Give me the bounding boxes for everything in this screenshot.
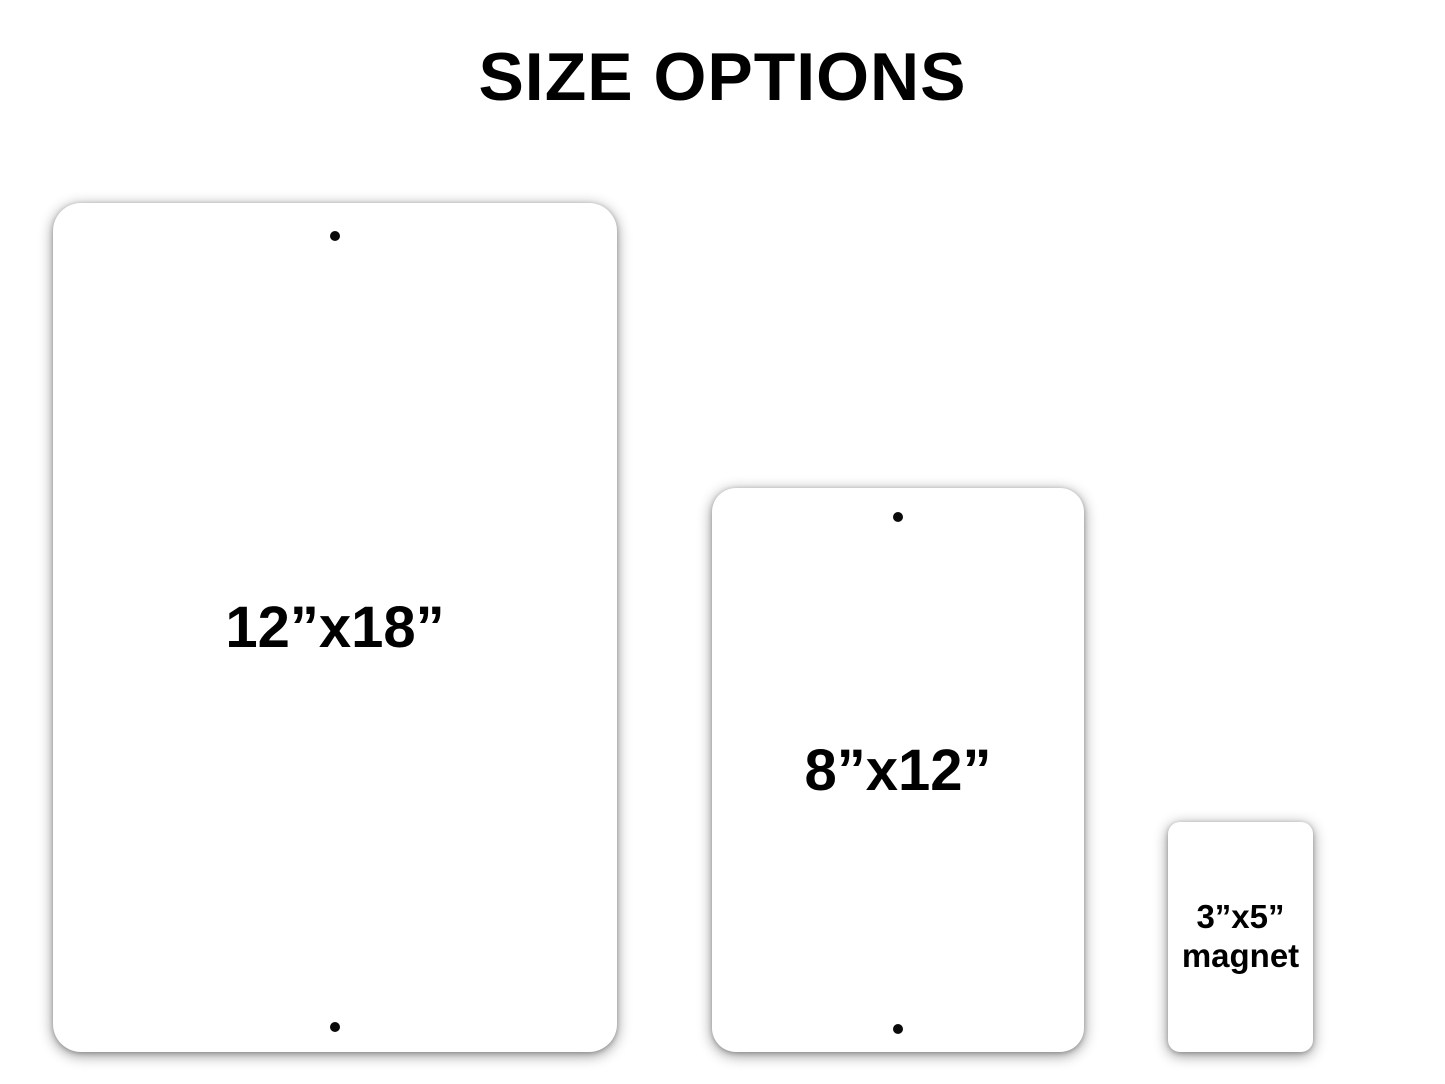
magnet-size-line: 3”x5” [1182, 898, 1299, 937]
mounting-hole-top-icon [893, 512, 903, 522]
size-option-12x18-sign: 12”x18” [53, 203, 617, 1052]
mounting-hole-bottom-icon [893, 1024, 903, 1034]
size-option-8x12-sign: 8”x12” [712, 488, 1084, 1052]
size-options-graphic: SIZE OPTIONS 12”x18” 8”x12” 3”x5” magnet [0, 0, 1445, 1084]
size-option-3x5-magnet: 3”x5” magnet [1168, 822, 1313, 1052]
size-label-3x5-magnet: 3”x5” magnet [1182, 898, 1299, 976]
size-label-8x12: 8”x12” [804, 737, 991, 804]
magnet-type-line: magnet [1182, 937, 1299, 976]
mounting-hole-top-icon [330, 231, 340, 241]
size-label-12x18: 12”x18” [225, 594, 444, 661]
mounting-hole-bottom-icon [330, 1022, 340, 1032]
page-title: SIZE OPTIONS [0, 38, 1445, 116]
